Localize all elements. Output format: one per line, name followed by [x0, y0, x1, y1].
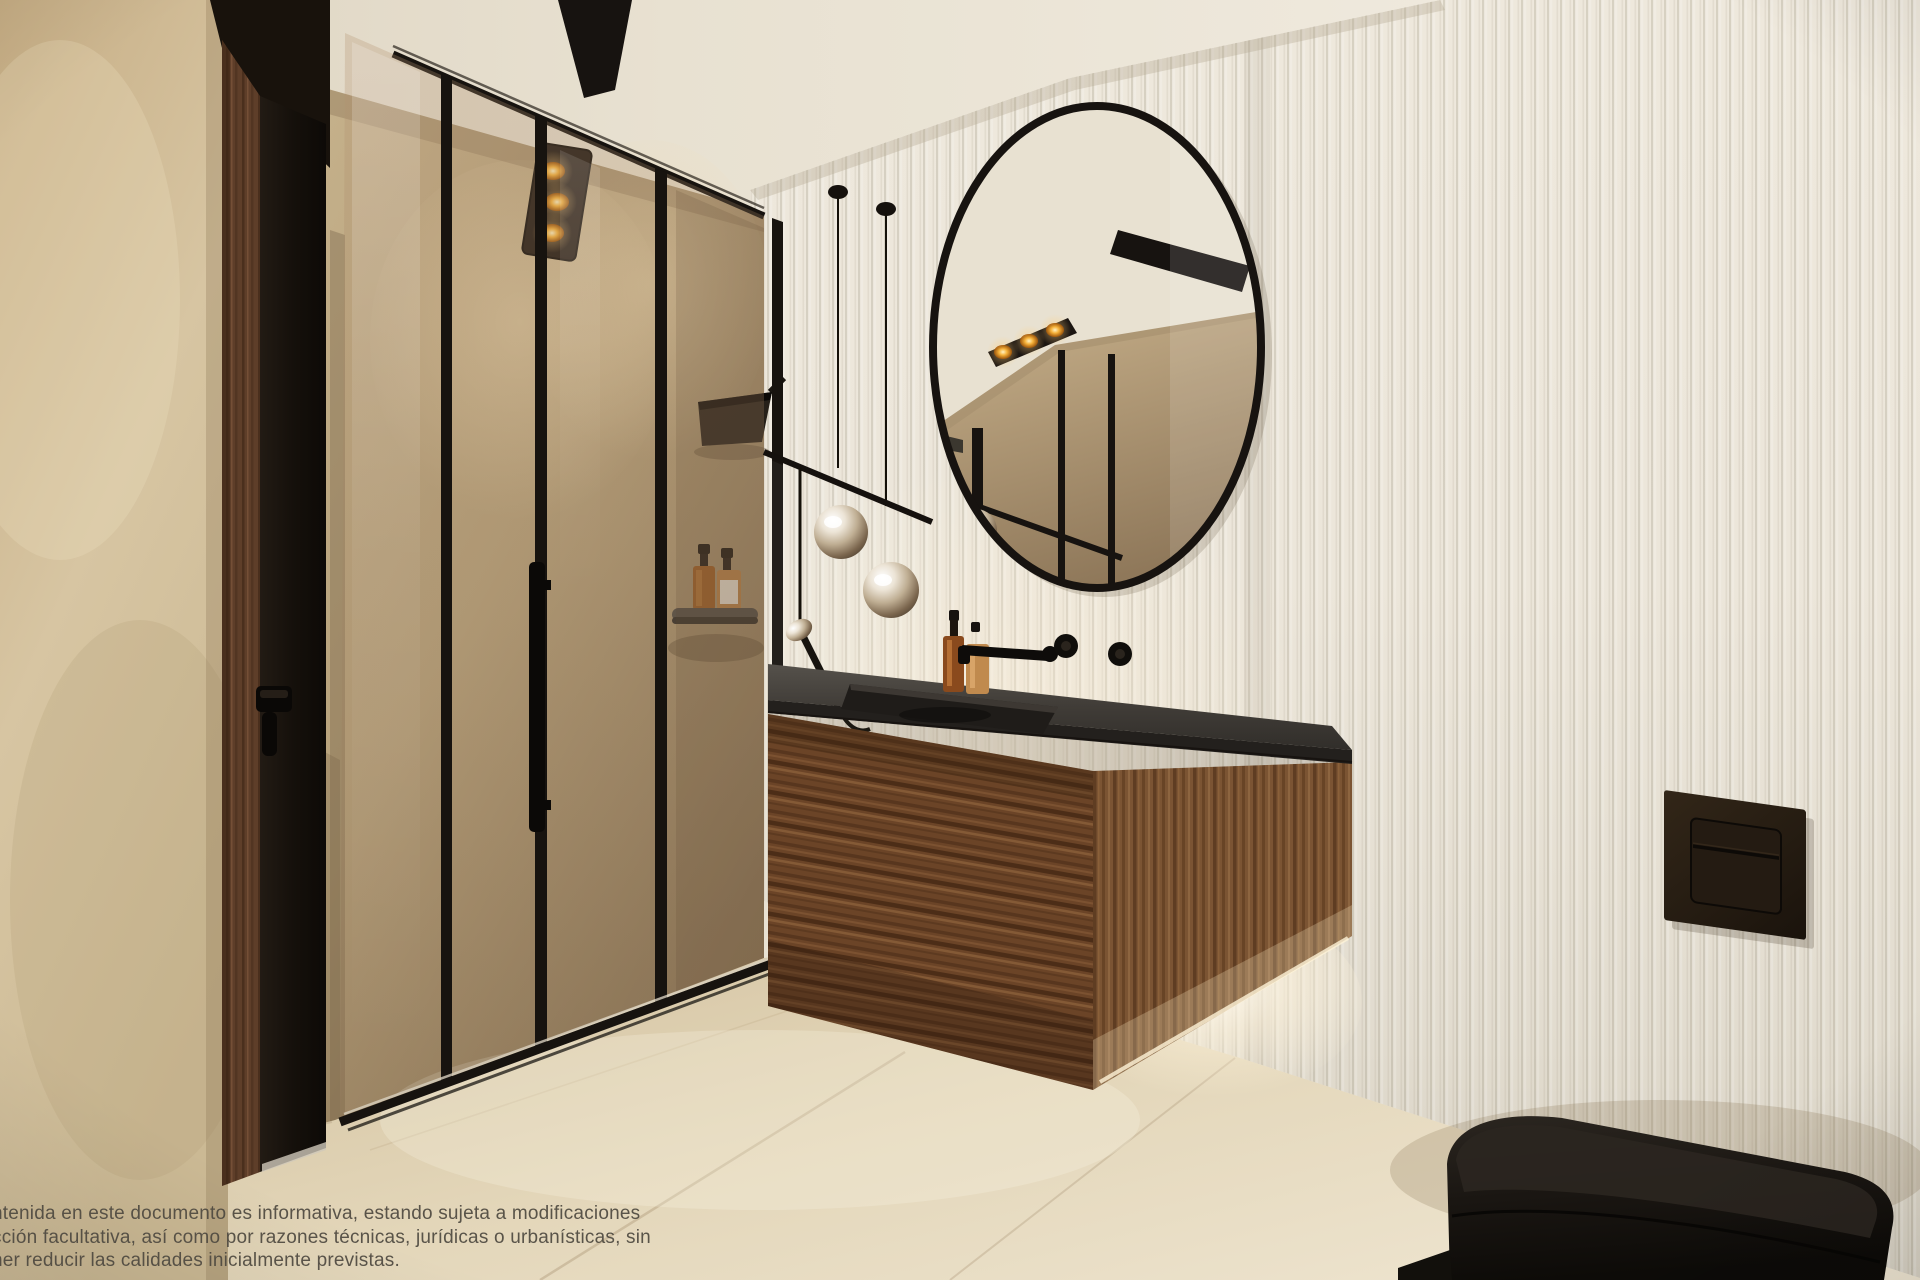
bathroom-render: ntenida en este documento es informativa…: [0, 0, 1920, 1280]
vignette: [0, 0, 1920, 1280]
disclaimer-line: cción facultativa, así como por razones …: [0, 1226, 752, 1250]
disclaimer-text: ntenida en este documento es informativa…: [0, 1202, 752, 1273]
render-canvas: [0, 0, 1920, 1280]
disclaimer-line: ner reducir las calidades inicialmente p…: [0, 1249, 752, 1273]
disclaimer-line: ntenida en este documento es informativa…: [0, 1202, 752, 1226]
